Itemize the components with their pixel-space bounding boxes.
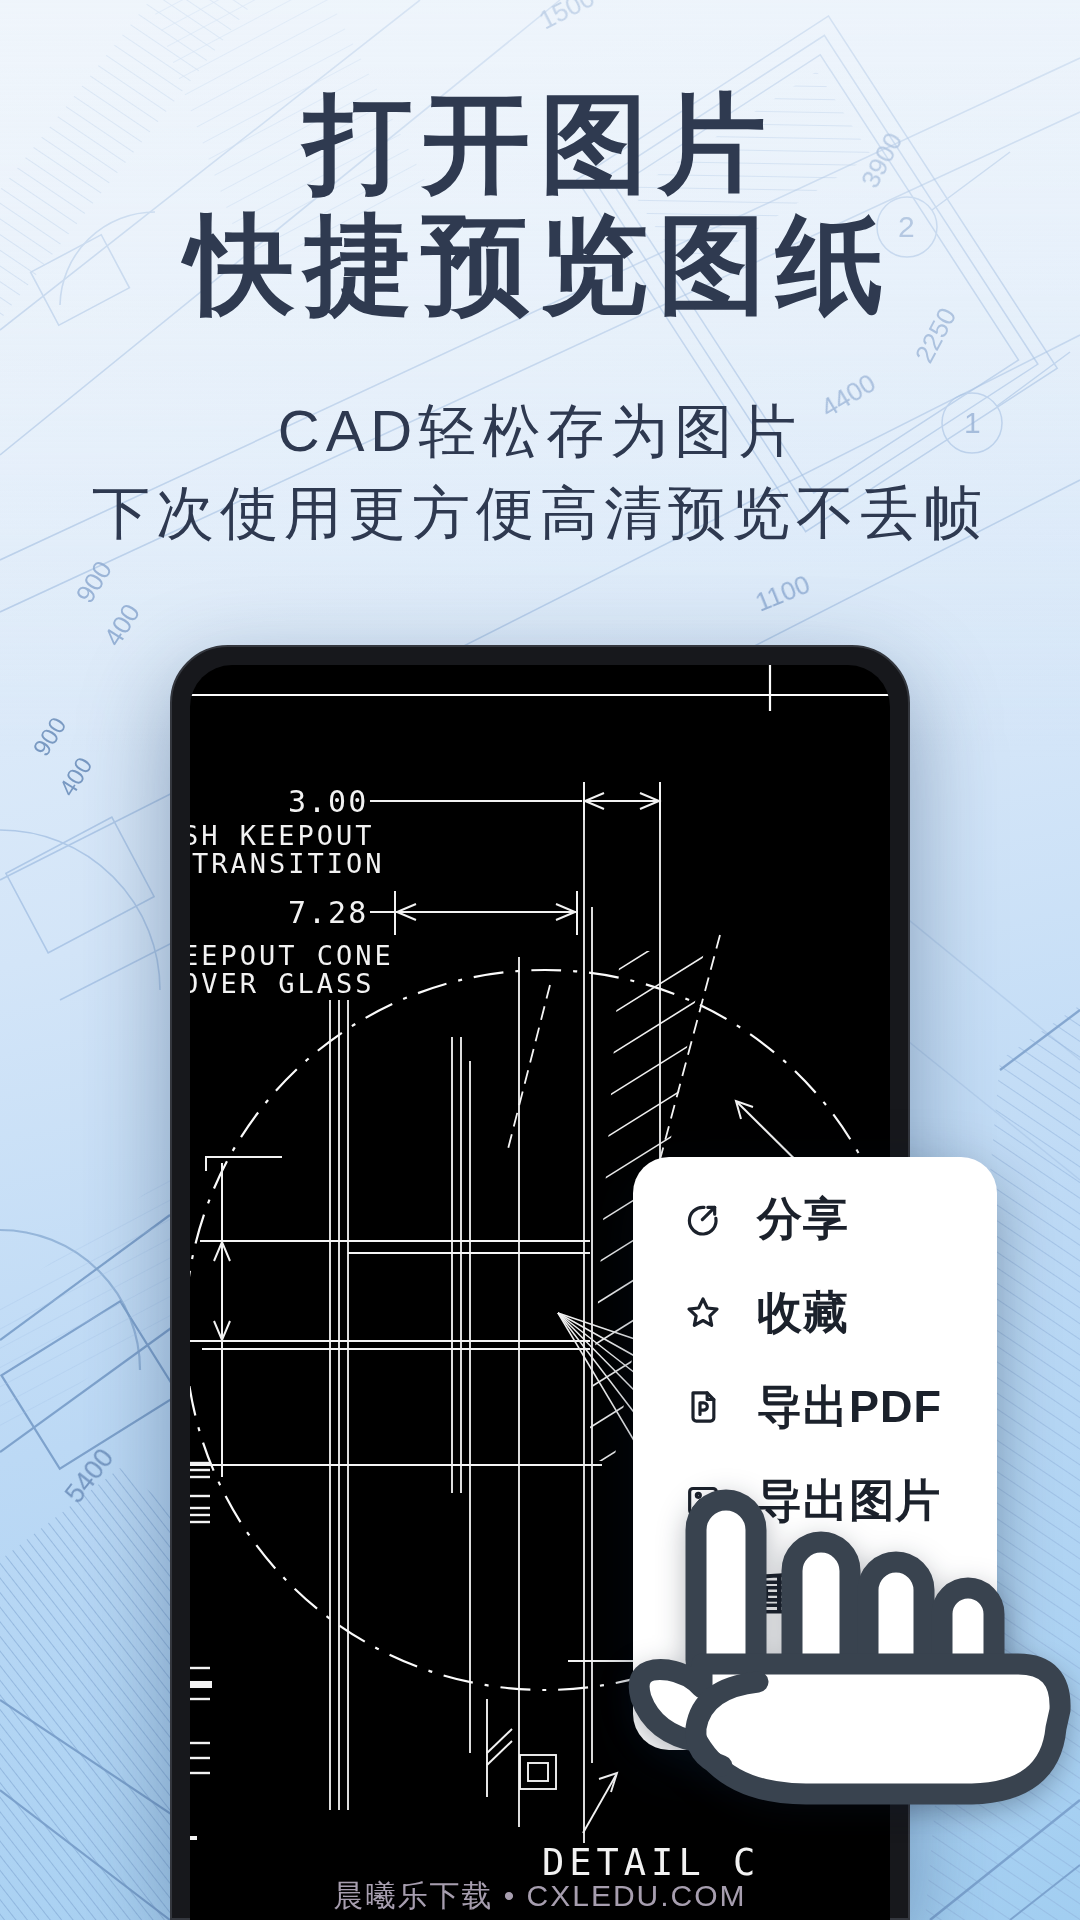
menu-item-label: 导出PDF — [757, 1377, 942, 1437]
pdf-icon — [683, 1387, 723, 1427]
hero-block: 打开图片 快捷预览图纸 CAD轻松存为图片 下次使用更方便高清预览不丢帧 — [0, 84, 1080, 555]
menu-item-label: 收藏 — [757, 1283, 849, 1343]
image-icon — [683, 1481, 723, 1521]
menu-item-delete[interactable]: 删除 — [633, 1642, 997, 1736]
page-subtitle: CAD轻松存为图片 下次使用更方便高清预览不丢帧 — [0, 390, 1080, 555]
cad-note-transition: TRANSITION — [192, 848, 385, 879]
title-line-1: 打开图片 — [0, 84, 1080, 205]
share-icon — [683, 1199, 723, 1239]
menu-item-label: 重命名 — [757, 1565, 895, 1625]
menu-item-share[interactable]: 分享 — [633, 1172, 997, 1266]
page-title: 打开图片 快捷预览图纸 — [0, 84, 1080, 326]
bp-dim: 400 — [98, 598, 146, 651]
title-line-2: 快捷预览图纸 — [0, 205, 1080, 326]
bp-dim: 400 — [53, 752, 97, 800]
bp-dim: 1100 — [751, 569, 814, 618]
bp-dim: 900 — [70, 555, 118, 608]
site-credit: 晨曦乐下载 • CXLEDU.COM — [0, 1876, 1080, 1917]
trash-icon — [683, 1669, 723, 1709]
menu-item-export-pdf[interactable]: 导出PDF — [633, 1360, 997, 1454]
cad-dim-7-28: 7.28 — [288, 895, 368, 930]
subtitle-line-2: 下次使用更方便高清预览不丢帧 — [0, 472, 1080, 554]
bp-dim: 1500 — [534, 0, 599, 35]
subtitle-line-1: CAD轻松存为图片 — [0, 390, 1080, 472]
context-menu: 分享 收藏 导出PDF 导出图片 — [633, 1157, 997, 1750]
bp-dim: 900 — [27, 712, 71, 760]
menu-item-export-image[interactable]: 导出图片 — [633, 1454, 997, 1548]
menu-item-favorite[interactable]: 收藏 — [633, 1266, 997, 1360]
menu-item-label: 导出图片 — [757, 1471, 941, 1531]
cad-note-cone: EEPOUT CONE — [190, 940, 394, 971]
menu-item-label: 删除 — [757, 1659, 849, 1719]
cad-note-glass: OVER GLASS — [190, 968, 375, 999]
menu-item-label: 分享 — [757, 1189, 849, 1249]
cad-note-keepout: SH KEEPOUT — [190, 820, 375, 851]
cad-dim-3-00: 3.00 — [288, 784, 368, 819]
menu-item-rename[interactable]: 重命名 — [633, 1548, 997, 1642]
rename-icon — [683, 1575, 723, 1615]
star-icon — [683, 1293, 723, 1333]
